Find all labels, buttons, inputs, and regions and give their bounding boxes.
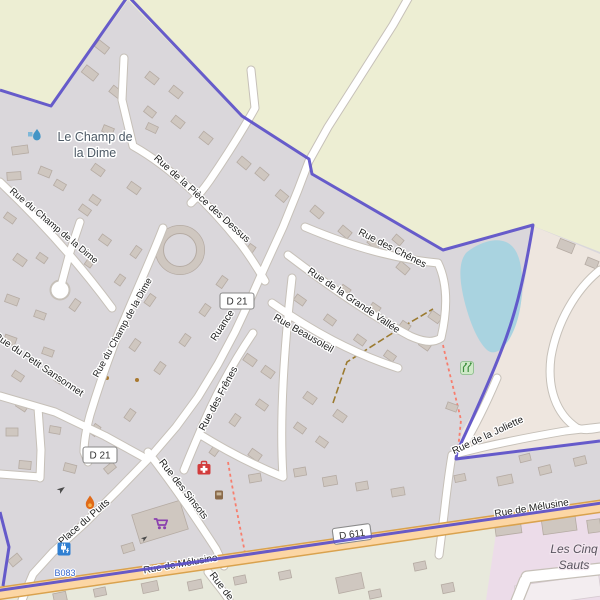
tree [135, 378, 139, 382]
building [391, 487, 405, 497]
road-ref-d21-north-text: D 21 [226, 297, 248, 308]
charging-station-icon[interactable] [58, 543, 71, 556]
building [6, 428, 18, 436]
building [355, 481, 368, 491]
building [248, 473, 261, 483]
road-ref-d21-south: D 21 [83, 447, 117, 463]
hamlet-label-line2: la Dime [74, 146, 116, 160]
building [12, 145, 29, 155]
map-canvas[interactable]: D 611 Rue de Mélusine Rue de Mélusine D … [0, 0, 600, 600]
retail-label-line1: Les Cinq [550, 542, 598, 556]
map-viewport[interactable]: D 611 Rue de Mélusine Rue de Mélusine D … [0, 0, 600, 600]
hamlet-label-line1: Le Champ de [57, 130, 132, 144]
building [49, 426, 61, 435]
building [7, 172, 22, 181]
playground-icon [461, 362, 474, 375]
building [441, 582, 455, 593]
building [293, 467, 306, 477]
kiosk-icon [215, 491, 223, 500]
building [322, 475, 337, 486]
charging-station-ref: B083 [54, 568, 75, 578]
retail-label-line2: Sauts [559, 558, 590, 572]
building [19, 460, 32, 469]
road-ref-d21-north: D 21 [220, 293, 254, 309]
building [587, 519, 600, 534]
road-ref-d21-south-text: D 21 [89, 451, 111, 462]
